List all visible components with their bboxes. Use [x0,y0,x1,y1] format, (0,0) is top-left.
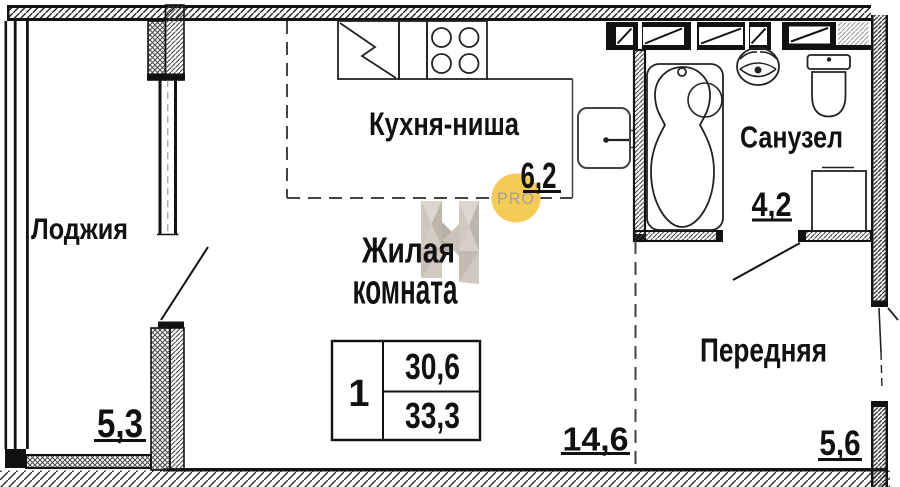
svg-text:5,6: 5,6 [820,424,861,463]
svg-text:30,6: 30,6 [405,346,460,387]
svg-text:Передняя: Передняя [700,332,827,369]
svg-text:14,6: 14,6 [563,421,629,458]
svg-text:Санузел: Санузел [740,120,843,155]
svg-text:Кухня-ниша: Кухня-ниша [369,106,519,142]
svg-text:комната: комната [353,266,458,313]
svg-text:6,2: 6,2 [521,155,557,196]
svg-text:Жилая: Жилая [361,230,455,271]
svg-text:1: 1 [348,373,369,415]
svg-text:4,2: 4,2 [752,186,792,224]
svg-text:Лоджия: Лоджия [31,213,128,246]
svg-text:33,3: 33,3 [405,395,460,436]
